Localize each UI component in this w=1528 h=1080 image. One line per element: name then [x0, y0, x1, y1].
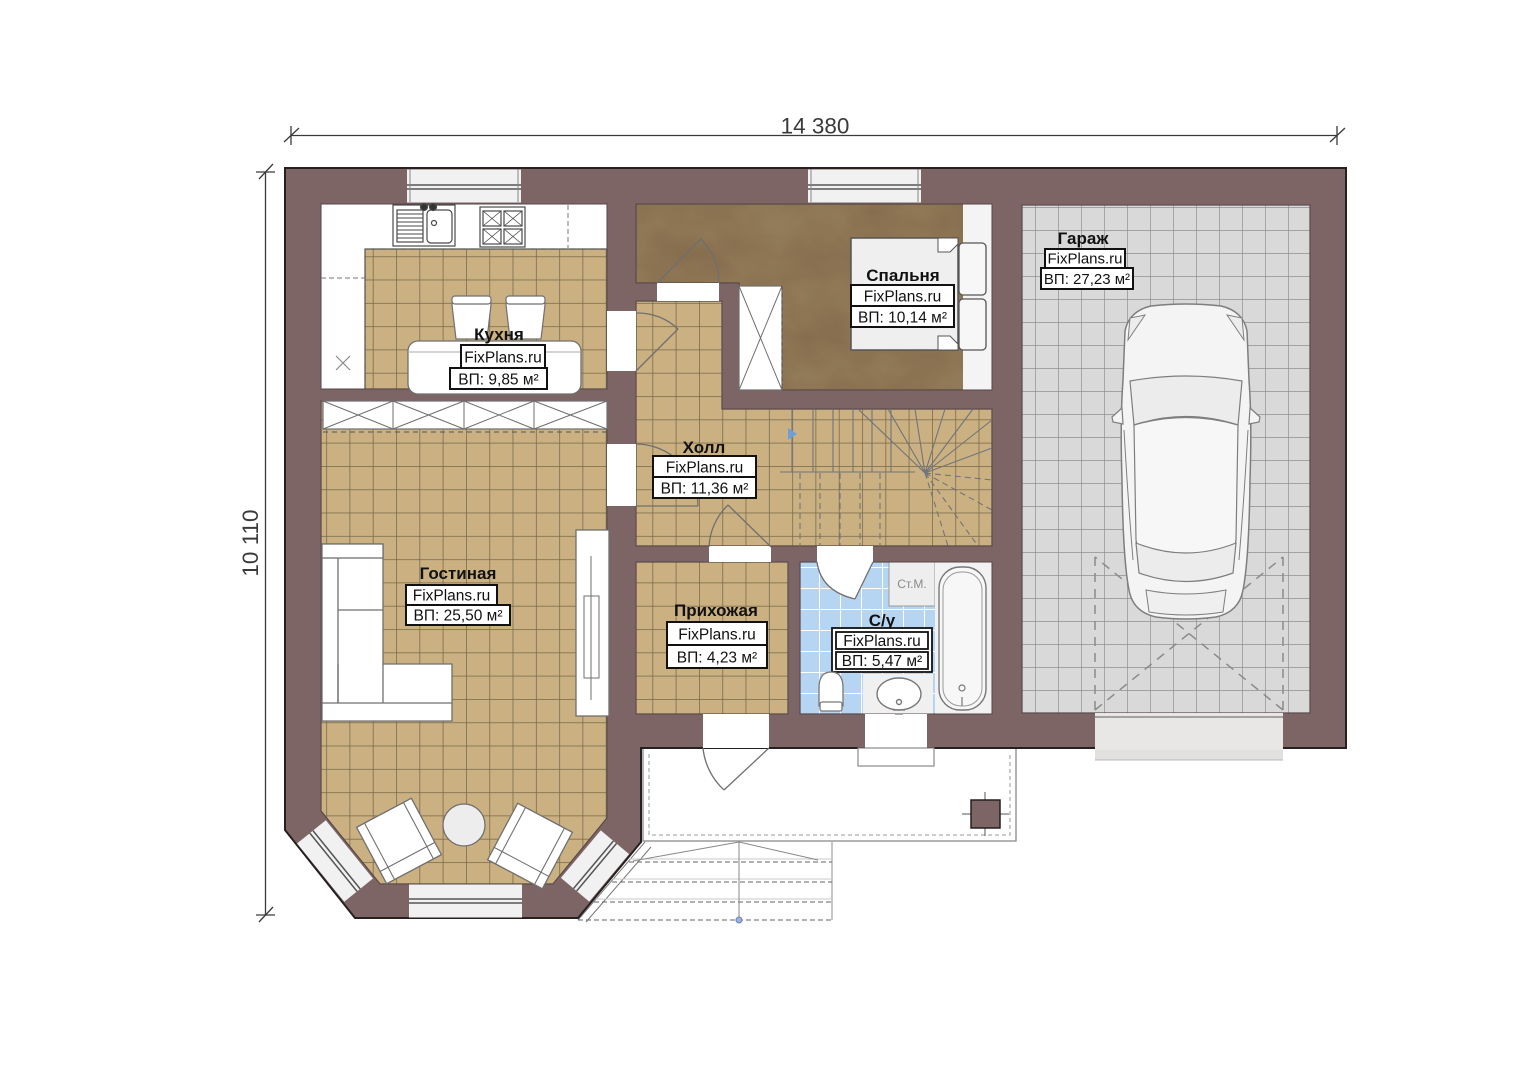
svg-text:10 110: 10 110	[238, 509, 263, 576]
svg-text:14 380: 14 380	[781, 114, 850, 139]
svg-text:FixPlans.ru: FixPlans.ru	[678, 627, 756, 644]
svg-text:ВП: 25,50 м²: ВП: 25,50 м²	[413, 608, 502, 625]
svg-text:ВП: 27,23 м²: ВП: 27,23 м²	[1044, 271, 1130, 288]
svg-text:Прихожая: Прихожая	[674, 601, 758, 620]
svg-text:FixPlans.ru: FixPlans.ru	[464, 350, 542, 367]
svg-text:ВП: 11,36 м²: ВП: 11,36 м²	[661, 481, 749, 498]
svg-text:Холл: Холл	[683, 438, 726, 457]
svg-text:FixPlans.ru: FixPlans.ru	[1047, 251, 1122, 268]
svg-text:FixPlans.ru: FixPlans.ru	[666, 460, 744, 477]
svg-text:Гараж: Гараж	[1058, 229, 1110, 248]
svg-text:ВП: 10,14 м²: ВП: 10,14 м²	[858, 310, 947, 327]
svg-text:Гостиная: Гостиная	[420, 564, 497, 583]
svg-text:FixPlans.ru: FixPlans.ru	[413, 588, 491, 605]
svg-text:FixPlans.ru: FixPlans.ru	[843, 633, 921, 650]
svg-text:Спальня: Спальня	[866, 266, 939, 285]
svg-text:Кухня: Кухня	[474, 325, 524, 344]
svg-text:ВП: 5,47 м²: ВП: 5,47 м²	[842, 653, 922, 670]
svg-text:FixPlans.ru: FixPlans.ru	[864, 289, 942, 306]
svg-text:Ст.М.: Ст.М.	[897, 577, 927, 591]
svg-text:ВП: 4,23 м²: ВП: 4,23 м²	[677, 650, 757, 667]
svg-text:ВП: 9,85 м²: ВП: 9,85 м²	[458, 372, 538, 389]
